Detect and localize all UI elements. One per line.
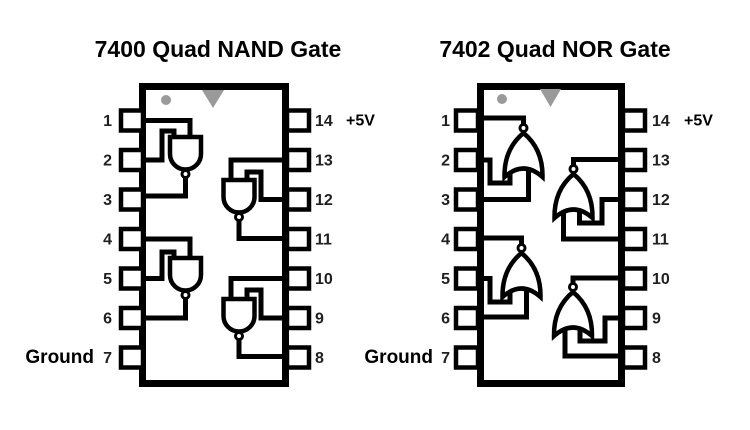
pin-box-5 (456, 269, 478, 289)
pin-box-1 (121, 111, 143, 131)
pin-number-label: 6 (103, 311, 112, 328)
pin-box-9 (287, 308, 309, 328)
ground-label: Ground (364, 347, 433, 368)
pin-number-label: 1 (441, 113, 450, 130)
inverter-bubble-icon (520, 125, 527, 132)
pin-box-13 (287, 150, 309, 170)
pin-number-label: 10 (315, 271, 333, 288)
inverter-bubble-icon (236, 214, 243, 221)
pin-number-label: 7 (441, 350, 450, 367)
pin-box-9 (623, 308, 645, 328)
pin-box-2 (121, 150, 143, 170)
ground-label: Ground (25, 347, 94, 368)
pin-box-14 (623, 111, 645, 131)
pin-box-3 (456, 190, 478, 210)
power-label: +5V (684, 113, 713, 130)
pin-number-label: 7 (103, 350, 112, 367)
pin-box-7 (456, 348, 478, 368)
pin-number-label: 10 (652, 271, 670, 288)
pin-number-label: 5 (103, 271, 112, 288)
inverter-bubble-icon (570, 166, 577, 173)
pin-number-label: 9 (315, 311, 324, 328)
pin-number-label: 12 (315, 192, 333, 209)
chip-title: 7402 Quad NOR Gate (439, 36, 670, 62)
nand-gate-icon (224, 180, 255, 212)
pin-number-label: 3 (103, 192, 112, 209)
pin-box-6 (121, 308, 143, 328)
pin-number-label: 14 (315, 113, 333, 130)
pin-number-label: 3 (441, 192, 450, 209)
pin-number-label: 8 (652, 350, 661, 367)
inverter-bubble-icon (182, 171, 189, 178)
pin-number-label: 4 (103, 232, 112, 249)
chip-7402: 7402 Quad NOR Gate (364, 36, 713, 384)
pin-box-6 (456, 308, 478, 328)
pin-number-label: 2 (103, 153, 112, 170)
pin1-dot-icon (161, 95, 171, 105)
pin-number-label: 9 (652, 311, 661, 328)
pin-number-label: 13 (315, 153, 333, 170)
nand-gate-icon (170, 137, 201, 170)
inverter-bubble-icon (236, 333, 243, 340)
inverter-bubble-icon (518, 245, 525, 252)
pin-number-label: 8 (315, 350, 324, 367)
pin-box-12 (623, 190, 645, 210)
pin-box-10 (287, 269, 309, 289)
pin-box-1 (456, 111, 478, 131)
nand-gate-icon (224, 299, 255, 331)
pin-box-8 (623, 348, 645, 368)
pin-box-2 (456, 150, 478, 170)
power-label: +5V (346, 113, 375, 130)
pin-number-label: 13 (652, 153, 670, 170)
pin-box-12 (287, 190, 309, 210)
pin-box-4 (121, 229, 143, 249)
pin-box-10 (623, 269, 645, 289)
chip-7400: 7400 Quad NAND Gate (25, 36, 375, 384)
pin-number-label: 2 (441, 153, 450, 170)
pin-box-7 (121, 348, 143, 368)
pin-number-label: 5 (441, 271, 450, 288)
ic-pinout-diagram: 7400 Quad NAND Gate (0, 0, 750, 430)
pin-number-label: 4 (441, 232, 450, 249)
pin-box-11 (287, 229, 309, 249)
pin-box-13 (623, 150, 645, 170)
pin-number-label: 12 (652, 192, 670, 209)
pin-number-label: 14 (652, 113, 670, 130)
pin-box-5 (121, 269, 143, 289)
pin-box-3 (121, 190, 143, 210)
chip-title: 7400 Quad NAND Gate (95, 36, 342, 62)
pin-box-14 (287, 111, 309, 131)
diagram-svg: 7400 Quad NAND Gate (0, 0, 750, 430)
pin-box-4 (456, 229, 478, 249)
inverter-bubble-icon (570, 284, 577, 291)
pin-number-label: 11 (315, 232, 332, 249)
nand-gate-icon (170, 258, 201, 291)
pin1-dot-icon (497, 94, 507, 104)
pin-box-8 (287, 348, 309, 368)
pin-number-label: 6 (441, 311, 450, 328)
pin-number-label: 11 (652, 232, 669, 249)
pin-number-label: 1 (103, 113, 112, 130)
inverter-bubble-icon (182, 292, 189, 299)
pin-box-11 (623, 229, 645, 249)
